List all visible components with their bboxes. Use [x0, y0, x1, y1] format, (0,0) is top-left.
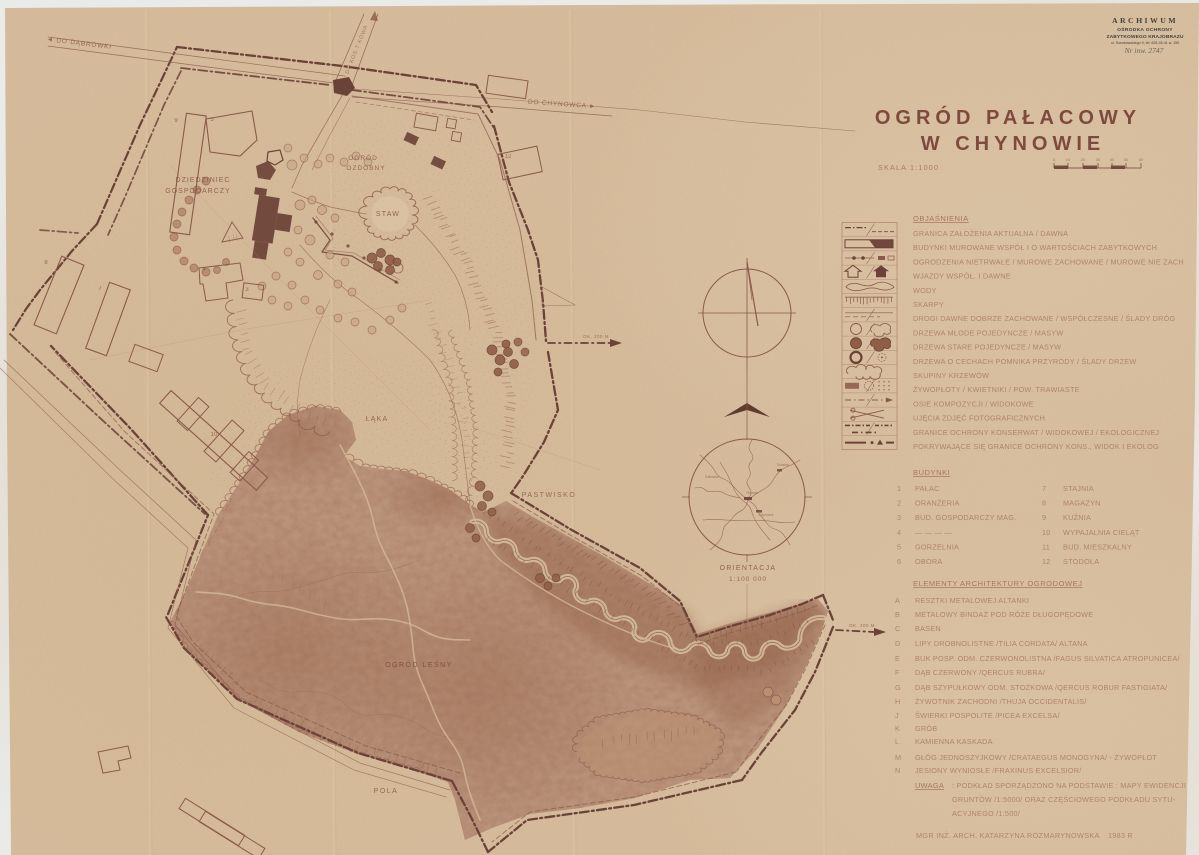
svg-text:GRANICA ZAŁOŻENIA AKTUALNA / D: GRANICA ZAŁOŻENIA AKTUALNA / DAWNA: [913, 229, 1068, 238]
svg-text:60: 60: [1139, 157, 1144, 162]
svg-text:OBORA: OBORA: [915, 557, 942, 566]
svg-text:KAMIENNA KASKADA: KAMIENNA KASKADA: [915, 737, 993, 746]
svg-text:30: 30: [1096, 157, 1101, 162]
svg-text:D: D: [895, 639, 901, 648]
svg-text:N: N: [895, 766, 901, 775]
svg-text:20: 20: [1081, 157, 1086, 162]
svg-text:DROGI DAWNE DOBRZE ZACHOWANE /: DROGI DAWNE DOBRZE ZACHOWANE / WSPÓŁCZES…: [913, 314, 1175, 323]
svg-text:OGRÓD LEŚNY: OGRÓD LEŚNY: [385, 660, 453, 669]
svg-text:ORANŻERIA: ORANŻERIA: [915, 499, 960, 508]
svg-text:H: H: [895, 697, 901, 706]
svg-text:MAGAZYN: MAGAZYN: [1063, 499, 1101, 508]
svg-text:LIPY DROBNOLISTNE /TILIA CORDA: LIPY DROBNOLISTNE /TILIA CORDATA/ ALTANA: [915, 639, 1088, 648]
svg-text:OSIE KOMPOZYCJI / WIDOKOWE: OSIE KOMPOZYCJI / WIDOKOWE: [913, 399, 1034, 408]
svg-text:GOSPODARCZY: GOSPODARCZY: [165, 188, 230, 195]
svg-text:SKUPINY KRZEWÓW: SKUPINY KRZEWÓW: [913, 371, 989, 380]
svg-text:BUDYNKI MUROWANE WSPÓŁ I O WAR: BUDYNKI MUROWANE WSPÓŁ I O WARTOŚCIACH Z…: [913, 243, 1157, 252]
svg-text:ul. Sosnkowskiego 9, tel. 628-: ul. Sosnkowskiego 9, tel. 628-45-41 w. 1…: [1111, 41, 1179, 45]
svg-text:1: 1: [897, 484, 901, 493]
svg-text:M: M: [895, 753, 901, 762]
svg-text:PASTWISKO: PASTWISKO: [522, 492, 577, 499]
svg-text:ŻYWOTNIK ZACHODNI /THUJA OCCID: ŻYWOTNIK ZACHODNI /THUJA OCCIDENTALIS/: [915, 697, 1087, 706]
svg-text:DRZEWA MŁODE POJEDYNCZE / MASY: DRZEWA MŁODE POJEDYNCZE / MASYW: [913, 328, 1063, 337]
svg-text:ŁĄKA: ŁĄKA: [366, 416, 389, 423]
svg-text:10: 10: [1042, 528, 1051, 537]
svg-text:G: G: [895, 683, 901, 692]
svg-text:10: 10: [211, 432, 218, 438]
svg-text:12: 12: [505, 154, 512, 160]
svg-text:POLA: POLA: [374, 788, 399, 795]
svg-text:Chynówek: Chynówek: [759, 513, 774, 517]
svg-text:Nr inw. 2747: Nr inw. 2747: [1124, 46, 1164, 55]
svg-text:GRANICE OCHRONY KONSERWAT / WI: GRANICE OCHRONY KONSERWAT / WIDOKOWEJ / …: [913, 428, 1159, 437]
svg-text:OGRÓD PAŁACOWY: OGRÓD PAŁACOWY: [875, 105, 1141, 129]
svg-text:OK. 200 M: OK. 200 M: [849, 623, 875, 628]
svg-text:JESIONY WYNIOSŁE /FRAXINUS EXC: JESIONY WYNIOSŁE /FRAXINUS EXCELSIOR/: [915, 766, 1082, 775]
svg-text:ELEMENTY ARCHITEKTURY OGRODOWE: ELEMENTY ARCHITEKTURY OGRODOWEJ: [913, 579, 1083, 588]
svg-text:GŁÓG JEDNOSZYJKOWY /CRATAEGUS: GŁÓG JEDNOSZYJKOWY /CRATAEGUS MONOGYNA/ …: [915, 753, 1157, 762]
svg-text:GORZELNIA: GORZELNIA: [915, 542, 959, 551]
svg-text:RESZTKI METALOWEJ ALTANKI: RESZTKI METALOWEJ ALTANKI: [915, 596, 1029, 605]
svg-text:STODOŁA: STODOŁA: [1063, 557, 1099, 566]
svg-text:DRZEWA O CECHACH POMNIKA PRZYR: DRZEWA O CECHACH POMNIKA PRZYRODY / ŚLAD…: [913, 357, 1136, 366]
svg-text:12: 12: [1042, 557, 1051, 566]
svg-text:9: 9: [1042, 513, 1046, 522]
svg-text:C: C: [895, 624, 901, 633]
svg-text:L: L: [895, 737, 899, 746]
svg-text:DĄB CZERWONY /QERCUS RUBRA/: DĄB CZERWONY /QERCUS RUBRA/: [915, 668, 1046, 677]
svg-text:BUDYNKI: BUDYNKI: [913, 468, 950, 477]
svg-text:BUK POSP. ODM. CZERWONOLISTNA: BUK POSP. ODM. CZERWONOLISTNA /FAGUS SIL…: [915, 654, 1181, 663]
svg-text:8: 8: [1042, 499, 1046, 508]
svg-text:B: B: [895, 610, 900, 619]
svg-text:KUŹNIA: KUŹNIA: [1063, 513, 1091, 522]
svg-text:4: 4: [897, 528, 901, 537]
svg-text:50: 50: [1124, 157, 1129, 162]
svg-text:OBJAŚNIENIA: OBJAŚNIENIA: [913, 214, 969, 223]
svg-text:DRZEWA STARE POJEDYNCZE / MASY: DRZEWA STARE POJEDYNCZE / MASYW: [913, 343, 1061, 352]
svg-text:WJAZDY WSPÓŁ. I DAWNE: WJAZDY WSPÓŁ. I DAWNE: [913, 272, 1011, 281]
svg-text:W CHYNOWIE: W CHYNOWIE: [921, 133, 1105, 155]
svg-text:ŻYWOPŁOTY / KWIETNIKI / POW. T: ŻYWOPŁOTY / KWIETNIKI / POW. TRAWIASTE: [913, 385, 1080, 394]
svg-text:5: 5: [897, 542, 901, 551]
svg-text:SKALA 1:1000: SKALA 1:1000: [878, 163, 939, 172]
svg-text:— — — —: — — — —: [915, 528, 952, 537]
svg-text:3: 3: [897, 513, 901, 522]
svg-text:MGR INŻ. ARCH. KATARZYNA ROZM: MGR INŻ. ARCH. KATARZYNA ROZMARYNOWSKA: [916, 831, 1100, 840]
svg-text:7: 7: [1042, 484, 1046, 493]
svg-text:OK. 200 M: OK. 200 M: [583, 334, 609, 339]
svg-text:ZABYTKOWEGO KRAJOBRAZU: ZABYTKOWEGO KRAJOBRAZU: [1107, 34, 1184, 40]
svg-text:F: F: [895, 668, 900, 677]
svg-text:2: 2: [897, 499, 901, 508]
svg-text:ARCHIWUM: ARCHIWUM: [1112, 16, 1178, 25]
svg-text:Sułkowice: Sułkowice: [705, 475, 720, 479]
svg-text:STAW: STAW: [376, 211, 400, 218]
svg-text:6: 6: [897, 557, 901, 566]
svg-text:1:100 000: 1:100 000: [729, 576, 767, 583]
svg-text:BUD. MIESZKALNY: BUD. MIESZKALNY: [1063, 542, 1132, 551]
svg-text:10: 10: [1066, 157, 1071, 162]
svg-text:STAJNIA: STAJNIA: [1063, 484, 1094, 493]
svg-text:OGRODZENIA NIETRWAŁE / MUROWE: OGRODZENIA NIETRWAŁE / MUROWE ZACHOWANE …: [913, 257, 1184, 266]
svg-text:K: K: [895, 724, 900, 733]
svg-text:DĄB SZYPUŁKOWY ODM. STOŻKOWA /: DĄB SZYPUŁKOWY ODM. STOŻKOWA /QERCUS ROB…: [915, 683, 1168, 692]
svg-text:DZIEDZINIEC: DZIEDZINIEC: [176, 177, 231, 184]
svg-text:ACYJNEGO /1:500/: ACYJNEGO /1:500/: [952, 809, 1021, 818]
svg-text:BASEN: BASEN: [915, 624, 941, 633]
svg-text:J: J: [895, 711, 899, 720]
svg-text:ORIENTACJA: ORIENTACJA: [720, 565, 777, 572]
svg-text:WODY: WODY: [913, 286, 937, 295]
svg-text:GRÓB: GRÓB: [915, 724, 937, 733]
svg-text:OŚRODKA OCHRONY: OŚRODKA OCHRONY: [1117, 26, 1173, 33]
svg-text:PAŁAC: PAŁAC: [915, 484, 940, 493]
svg-text:GRUNTÓW /1:5000/ ORAZ CZĘŚCIOW: GRUNTÓW /1:5000/ ORAZ CZĘŚCIOWEGO PODKŁA…: [952, 795, 1176, 804]
svg-text:40: 40: [1110, 157, 1115, 162]
svg-text:OGRÓD: OGRÓD: [348, 153, 378, 162]
svg-text:Chynów: Chynów: [746, 491, 758, 495]
svg-text:ŚWIERKI POSPOLITE /PICEA EXCEL: ŚWIERKI POSPOLITE /PICEA EXCELSA/: [915, 711, 1060, 720]
svg-text:BUD. GOSPODARCZY MAG.: BUD. GOSPODARCZY MAG.: [915, 513, 1016, 522]
svg-text:OZDOBNY: OZDOBNY: [346, 165, 385, 172]
svg-text:SKARPY: SKARPY: [913, 300, 944, 309]
svg-text:1983 R: 1983 R: [1108, 831, 1133, 840]
svg-text:UWAGA: UWAGA: [915, 781, 944, 790]
svg-text:METALOWY BINDAŻ POD RÓŻE DŁUGO: METALOWY BINDAŻ POD RÓŻE DŁUGOPĘDOWE: [915, 610, 1093, 619]
svg-text:POKRYWAJĄCE SIĘ GRANICE OCHRON: POKRYWAJĄCE SIĘ GRANICE OCHRONY KONS., W…: [913, 442, 1159, 451]
svg-text:11: 11: [1042, 542, 1050, 551]
svg-text:: PODKŁAD SPORZĄDZONO NA PODST: : PODKŁAD SPORZĄDZONO NA PODSTAWIE : MAP…: [952, 781, 1186, 790]
svg-text:Drwalew: Drwalew: [777, 463, 790, 467]
svg-text:A: A: [895, 596, 900, 605]
svg-text:WYPAJALNIA CIELĄT: WYPAJALNIA CIELĄT: [1063, 528, 1140, 537]
svg-text:E: E: [895, 654, 900, 663]
svg-text:UJĘCIA ZDJĘĆ FOTOGRAFICZNYCH: UJĘCIA ZDJĘĆ FOTOGRAFICZNYCH: [913, 414, 1045, 423]
